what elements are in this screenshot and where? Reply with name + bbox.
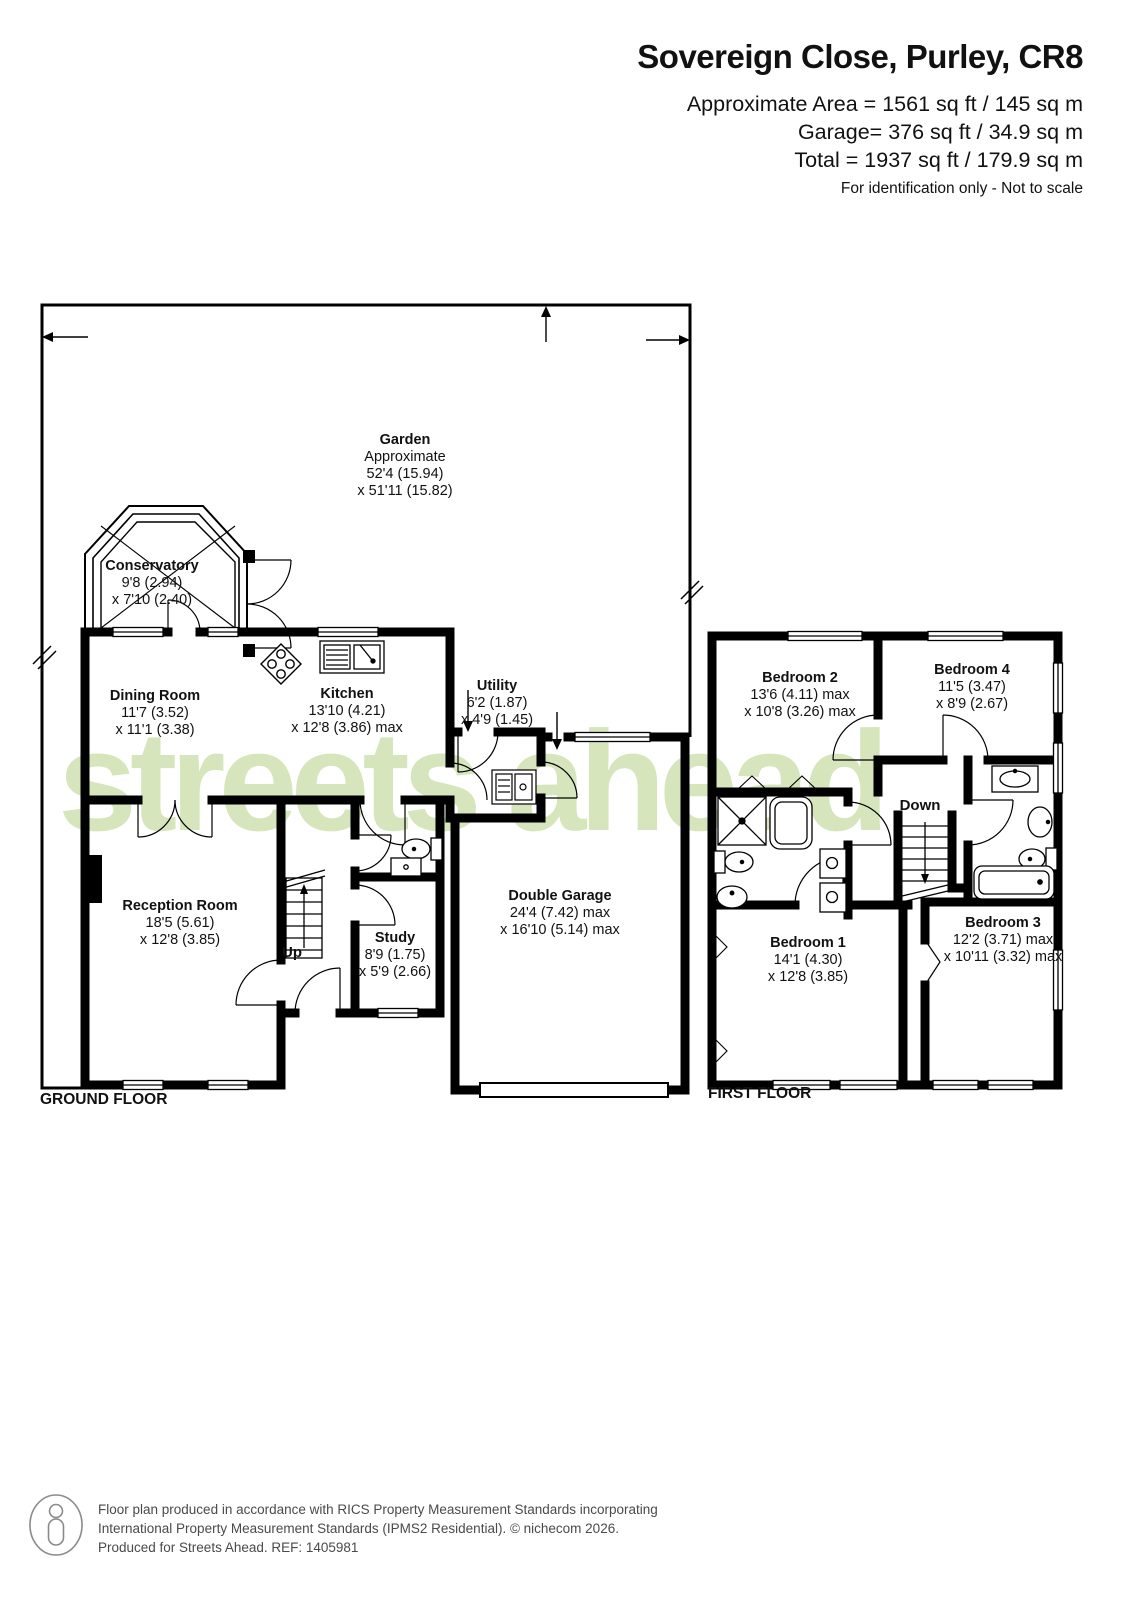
footer-line1: Floor plan produced in accordance with R…: [98, 1500, 658, 1519]
stairs-down-label: Down: [900, 797, 941, 814]
bathroom-basin-top-icon: [992, 766, 1038, 792]
floorplan-drawing: [0, 0, 1131, 1599]
garden-dim3: x 51'11 (15.82): [357, 483, 452, 500]
bathroom-fixtures: [974, 766, 1057, 899]
utility-name: Utility: [461, 678, 533, 695]
room-label-bedroom1: Bedroom 1 14'1 (4.30) x 12'8 (3.85): [768, 935, 848, 986]
conservatory-dim2: x 7'10 (2.40): [105, 592, 198, 609]
garden-dim2: 52'4 (15.94): [357, 466, 452, 483]
bedroom1-name: Bedroom 1: [768, 935, 848, 952]
ensuite-bath-icon: [770, 797, 812, 849]
room-label-dining-room: Dining Room 11'7 (3.52) x 11'1 (3.38): [110, 688, 200, 739]
room-label-double-garage: Double Garage 24'4 (7.42) max x 16'10 (5…: [500, 888, 620, 939]
shower-icon: [718, 797, 766, 845]
kitchen-sink-icon: [320, 641, 384, 673]
ensuite-toilet-icon: [714, 851, 753, 873]
bedroom1-dim1: 14'1 (4.30): [768, 952, 848, 969]
wc-toilet-icon: [391, 838, 442, 876]
bedroom2-dim1: 13'6 (4.11) max: [744, 687, 856, 704]
garden-name: Garden: [357, 432, 452, 449]
first-floor-label: FIRST FLOOR: [708, 1085, 811, 1103]
room-label-garden: Garden Approximate 52'4 (15.94) x 51'11 …: [357, 432, 452, 500]
double-garage-dim2: x 16'10 (5.14) max: [500, 922, 620, 939]
stairs-down: [898, 815, 952, 903]
garden-arrowheads: [42, 306, 690, 345]
study-name: Study: [359, 930, 431, 947]
person-icon: [28, 1492, 84, 1558]
garden-dim1: Approximate: [357, 449, 452, 466]
ground-floor-label: GROUND FLOOR: [40, 1091, 167, 1109]
room-label-utility: Utility 6'2 (1.87) x 4'9 (1.45): [461, 678, 533, 729]
room-label-conservatory: Conservatory 9'8 (2.94) x 7'10 (2.40): [105, 558, 198, 609]
footer-line3: Produced for Streets Ahead. REF: 1405981: [98, 1538, 658, 1557]
dining-room-name: Dining Room: [110, 688, 200, 705]
hob-icon: [261, 644, 301, 684]
reception-room-dim1: 18'5 (5.61): [122, 915, 237, 932]
ensuite-basin-icon: [717, 886, 747, 908]
room-label-kitchen: Kitchen 13'10 (4.21) x 12'8 (3.86) max: [291, 686, 403, 737]
bedroom4-dim1: 11'5 (3.47): [934, 679, 1010, 696]
room-label-bedroom3: Bedroom 3 12'2 (3.71) max x 10'11 (3.32)…: [944, 915, 1063, 966]
utility-sink-icon: [492, 770, 536, 804]
ensuite-fixtures: [714, 797, 846, 912]
kitchen-dim2: x 12'8 (3.86) max: [291, 720, 403, 737]
bedroom1-dim2: x 12'8 (3.85): [768, 969, 848, 986]
bedroom4-dim2: x 8'9 (2.67): [934, 696, 1010, 713]
double-garage-name: Double Garage: [500, 888, 620, 905]
bathroom-bath-icon: [974, 866, 1054, 899]
dining-room-dim1: 11'7 (3.52): [110, 705, 200, 722]
bedroom3-name: Bedroom 3: [944, 915, 1063, 932]
footer-text: Floor plan produced in accordance with R…: [98, 1492, 658, 1557]
room-label-reception-room: Reception Room 18'5 (5.61) x 12'8 (3.85): [122, 898, 237, 949]
study-dim1: 8'9 (1.75): [359, 947, 431, 964]
utility-dim2: x 4'9 (1.45): [461, 712, 533, 729]
garage-door: [480, 1083, 668, 1097]
bedroom3-open-door: [925, 940, 940, 985]
study-dim2: x 5'9 (2.66): [359, 964, 431, 981]
floorplan-page: Sovereign Close, Purley, CR8 Approximate…: [0, 0, 1131, 1599]
kitchen-dim1: 13'10 (4.21): [291, 703, 403, 720]
room-label-study: Study 8'9 (1.75) x 5'9 (2.66): [359, 930, 431, 981]
bedroom2-name: Bedroom 2: [744, 670, 856, 687]
stairs-up-label: Up: [282, 944, 302, 961]
bedroom3-dim2: x 10'11 (3.32) max: [944, 949, 1063, 966]
footer: Floor plan produced in accordance with R…: [28, 1492, 658, 1558]
kitchen-name: Kitchen: [291, 686, 403, 703]
double-garage-dim1: 24'4 (7.42) max: [500, 905, 620, 922]
conservatory-name: Conservatory: [105, 558, 198, 575]
utility-dim1: 6'2 (1.87): [461, 695, 533, 712]
reception-room-dim2: x 12'8 (3.85): [122, 932, 237, 949]
bedroom2-dim2: x 10'8 (3.26) max: [744, 704, 856, 721]
room-label-bedroom4: Bedroom 4 11'5 (3.47) x 8'9 (2.67): [934, 662, 1010, 713]
room-label-bedroom2: Bedroom 2 13'6 (4.11) max x 10'8 (3.26) …: [744, 670, 856, 721]
dining-room-dim2: x 11'1 (3.38): [110, 722, 200, 739]
conservatory-dim1: 9'8 (2.94): [105, 575, 198, 592]
bedroom4-name: Bedroom 4: [934, 662, 1010, 679]
chimney-breast: [89, 855, 102, 903]
bathroom-basin-right-icon: [1028, 807, 1052, 837]
bedroom3-dim1: 12'2 (3.71) max: [944, 932, 1063, 949]
footer-line2: International Property Measurement Stand…: [98, 1519, 658, 1538]
reception-room-name: Reception Room: [122, 898, 237, 915]
ensuite-twin-basins-icon: [820, 849, 846, 912]
